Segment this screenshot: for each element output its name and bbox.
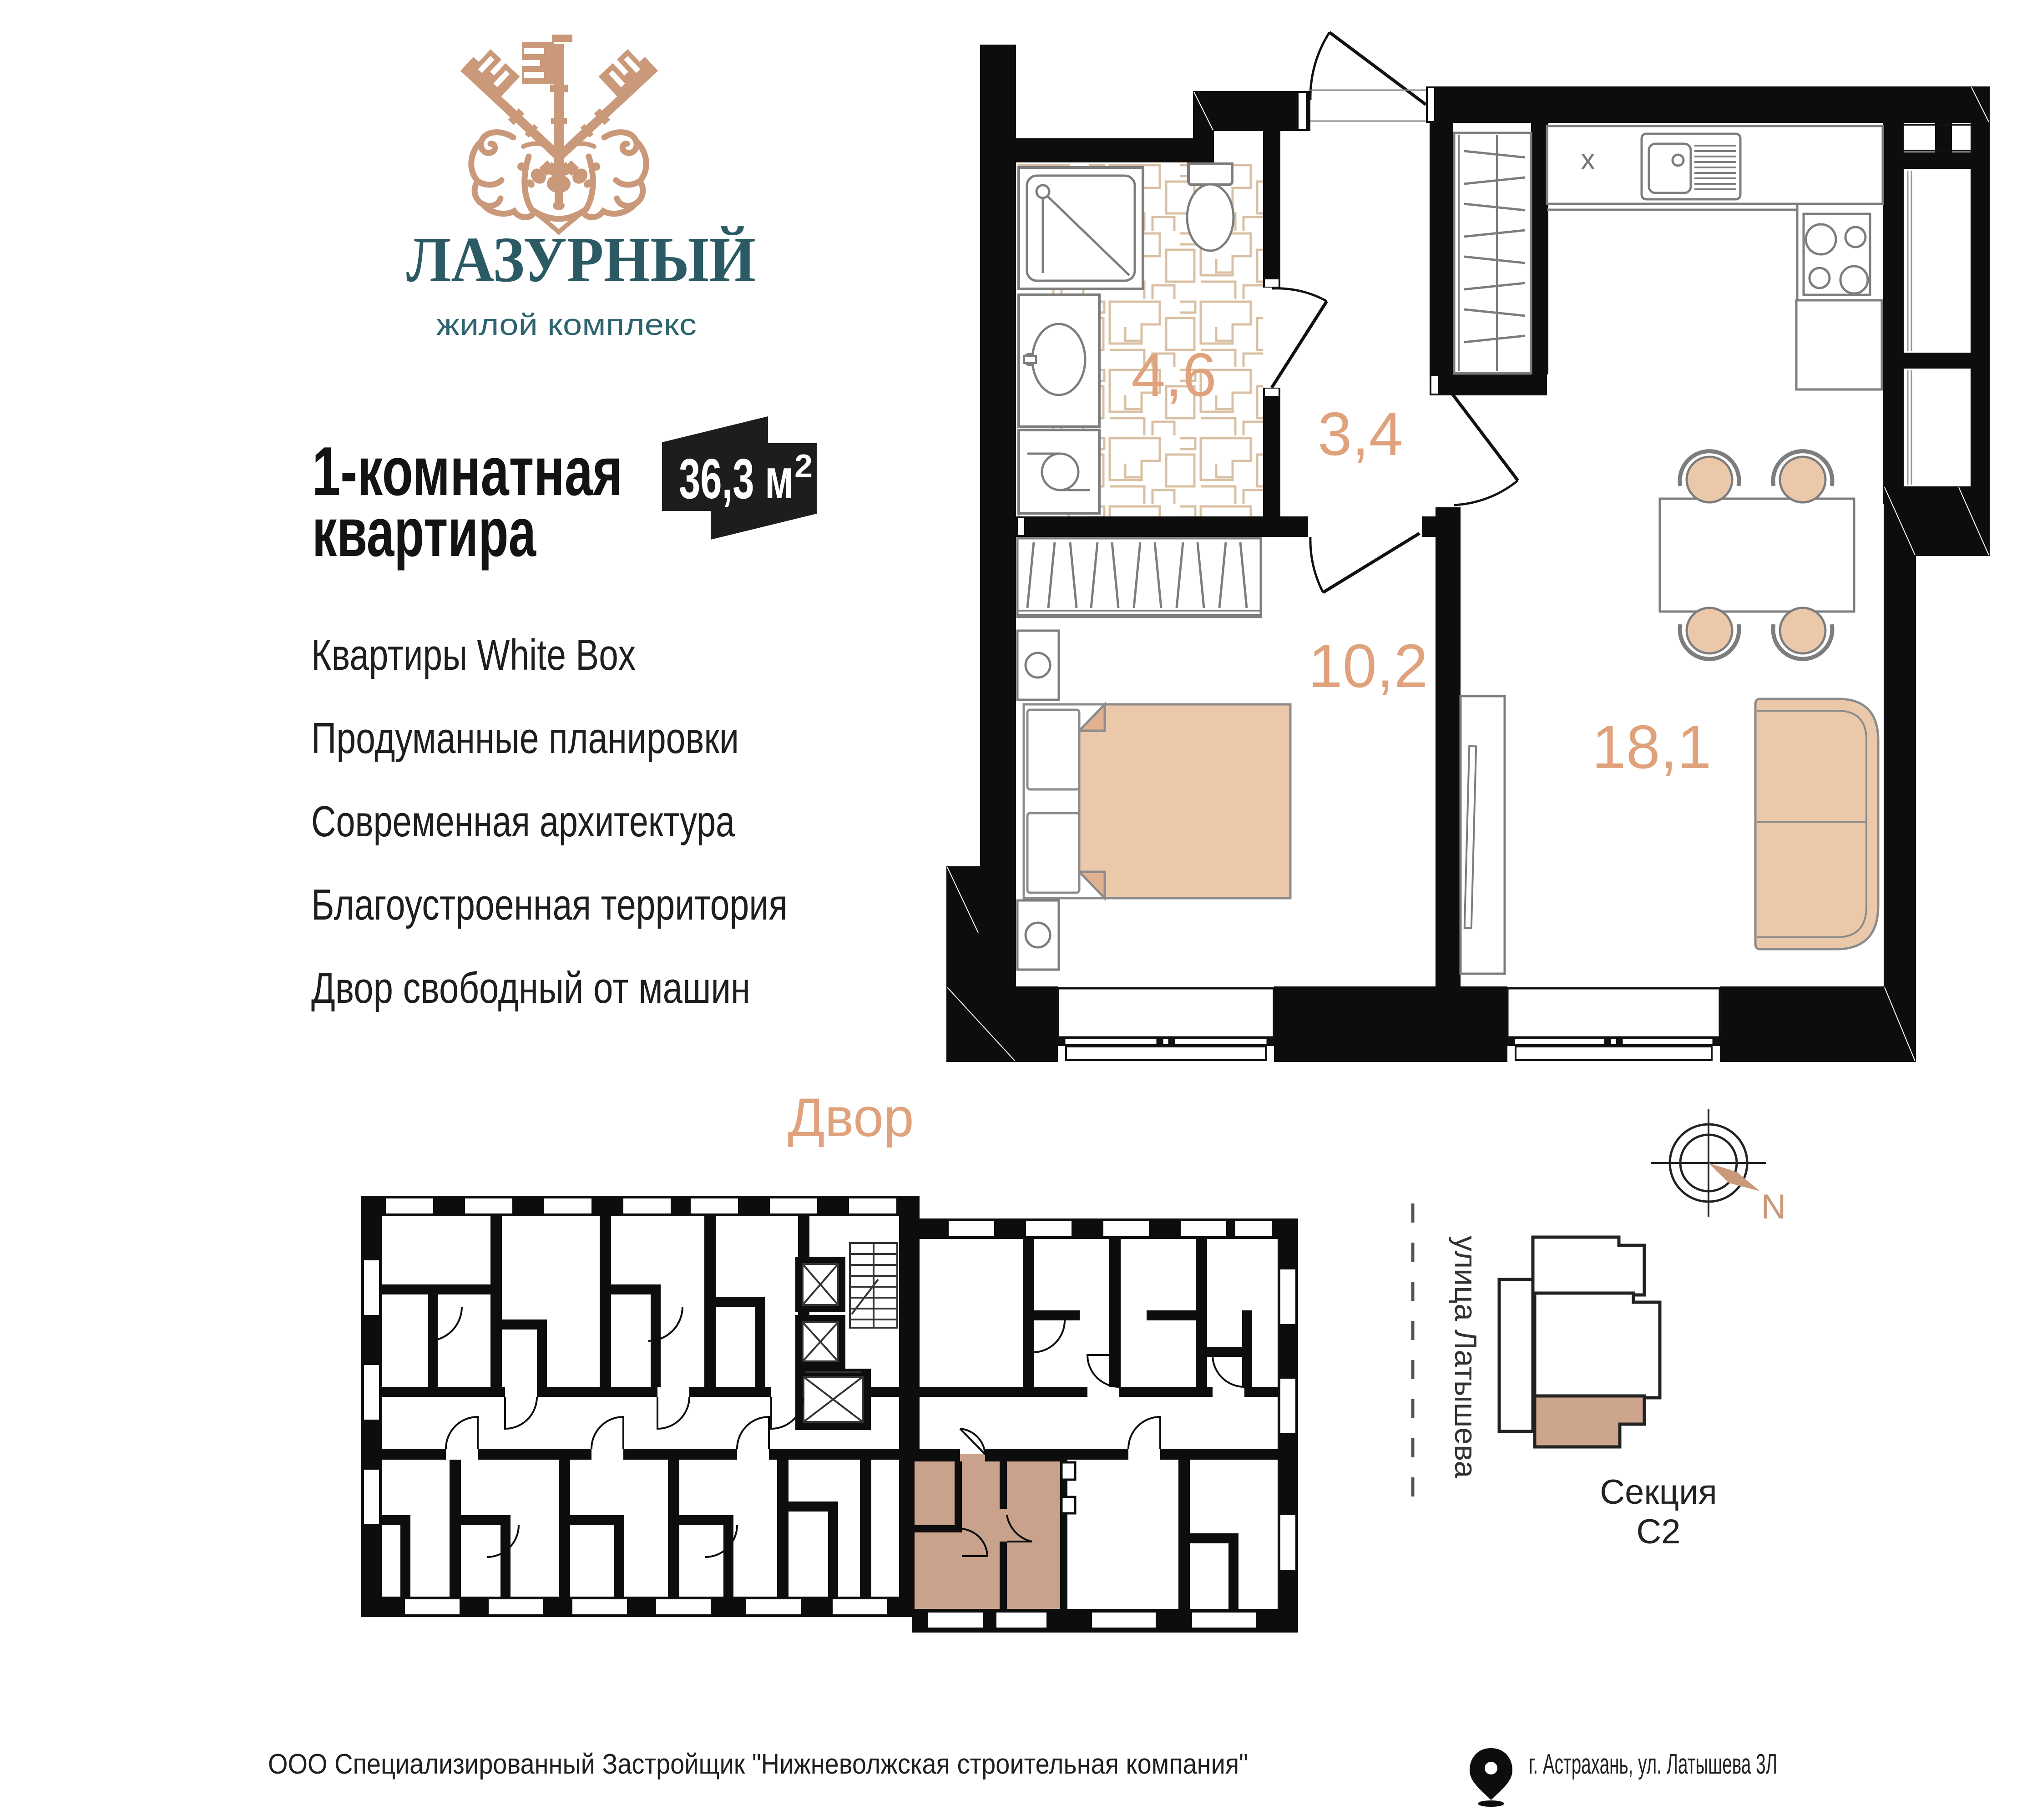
svg-text:Продуманные планировки: Продуманные планировки [311,714,739,763]
svg-text:Двор: Двор [788,1087,914,1148]
svg-text:С2: С2 [1636,1512,1680,1551]
svg-text:Квартиры White Box: Квартиры White Box [311,631,636,679]
svg-text:18,1: 18,1 [1592,713,1712,781]
svg-text:г. Астрахань, ул. Латышева 3Л: г. Астрахань, ул. Латышева 3Л [1529,1749,1777,1780]
svg-text:ЛАЗУРНЫЙ: ЛАЗУРНЫЙ [406,223,756,295]
svg-text:улица Латышева: улица Латышева [1448,1236,1483,1478]
svg-text:Современная архитектура: Современная архитектура [311,797,735,846]
svg-text:Благоустроенная территория: Благоустроенная территория [311,880,788,929]
svg-text:жилой комплекс: жилой комплекс [436,308,697,341]
svg-text:Двор свободный от машин: Двор свободный от машин [311,964,750,1012]
svg-text:x: x [1581,143,1595,176]
svg-text:3,4: 3,4 [1318,399,1403,468]
svg-text:квартира: квартира [312,494,536,571]
svg-text:36,3 м2: 36,3 м2 [679,448,813,511]
svg-text:4,6: 4,6 [1131,340,1217,409]
svg-text:ООО Специализированный Застрой: ООО Специализированный Застройщик "Нижне… [268,1749,1248,1780]
svg-text:Секция: Секция [1600,1473,1717,1512]
svg-text:N: N [1761,1188,1786,1226]
svg-text:10,2: 10,2 [1309,632,1428,700]
